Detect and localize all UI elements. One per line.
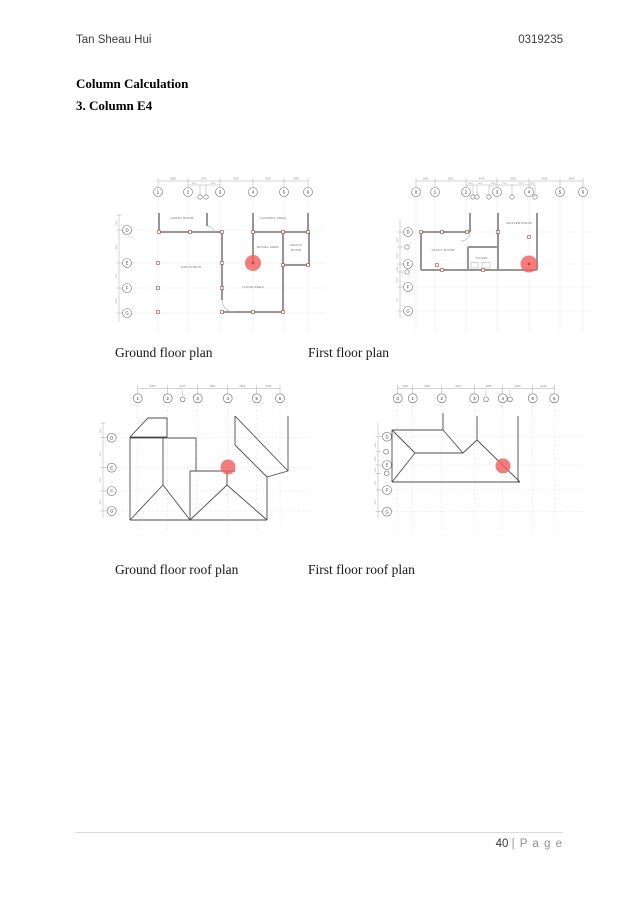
grid-bubbles: 0 1 2 3 4 5 6 D E F G (383, 394, 559, 516)
section-title: Column Calculation (76, 76, 188, 92)
header-student-id: 0319235 (518, 34, 563, 46)
svg-text:3925: 3925 (239, 384, 245, 388)
svg-text:3925: 3925 (542, 177, 548, 181)
svg-text:3925: 3925 (448, 177, 454, 181)
dimension-lines: 3925 4475 3925 3925 3440 1625 2850 3000 … (116, 177, 308, 323)
svg-text:3925: 3925 (424, 384, 430, 388)
faint-grid (404, 198, 595, 332)
svg-text:F: F (407, 285, 410, 290)
svg-text:TOILET: TOILET (476, 256, 488, 260)
svg-text:3925: 3925 (265, 177, 271, 181)
svg-text:D: D (110, 435, 113, 440)
roof-lines (130, 416, 288, 520)
svg-text:1425: 1425 (491, 183, 497, 185)
svg-text:CAR PORCH: CAR PORCH (181, 265, 201, 269)
footer-divider (75, 832, 563, 833)
svg-text:2060: 2060 (402, 384, 408, 388)
svg-text:4475: 4475 (180, 384, 186, 388)
svg-text:3925: 3925 (515, 384, 521, 388)
column-e4-highlight (521, 256, 538, 273)
svg-text:1950: 1950 (375, 442, 377, 448)
svg-text:3075: 3075 (397, 297, 399, 303)
svg-text:3000: 3000 (100, 499, 102, 505)
svg-text:2850: 2850 (211, 183, 217, 185)
svg-text:F: F (126, 286, 129, 291)
page-header: Tan Sheau Hui 0319235 (76, 34, 563, 46)
svg-text:3440: 3440 (293, 177, 299, 181)
svg-text:D: D (406, 230, 409, 235)
svg-text:2850: 2850 (397, 253, 399, 259)
room-labels: STUDY ROOM TOILET MASTER ROOM (432, 221, 532, 260)
svg-text:ROOM: ROOM (291, 248, 302, 252)
svg-text:4475: 4475 (455, 384, 461, 388)
svg-text:2325: 2325 (530, 183, 536, 185)
svg-text:2325: 2325 (375, 480, 377, 486)
svg-text:2325: 2325 (397, 277, 399, 283)
header-author: Tan Sheau Hui (76, 34, 151, 46)
document-page: Tan Sheau Hui 0319235 Column Calculation… (0, 0, 638, 902)
svg-text:3075: 3075 (116, 273, 118, 279)
svg-text:DINING AREA: DINING AREA (257, 245, 280, 249)
svg-text:3075: 3075 (375, 499, 377, 505)
subsection-title: 3. Column E4 (76, 98, 152, 114)
svg-text:4475: 4475 (201, 177, 207, 181)
svg-text:F: F (110, 489, 113, 494)
svg-text:1625: 1625 (478, 183, 484, 185)
svg-text:E: E (126, 261, 129, 266)
svg-text:1150: 1150 (397, 266, 399, 271)
svg-text:MASTER ROOM: MASTER ROOM (506, 221, 532, 225)
svg-text:3440: 3440 (541, 384, 547, 388)
column-e4-highlight (496, 459, 511, 474)
svg-text:3925: 3925 (510, 177, 516, 181)
svg-text:LAUNDRY AREA: LAUNDRY AREA (260, 216, 287, 220)
svg-text:3440: 3440 (569, 177, 575, 181)
svg-text:3925: 3925 (210, 384, 216, 388)
svg-text:E: E (110, 465, 113, 470)
svg-text:3925: 3925 (233, 177, 239, 181)
svg-text:D: D (125, 228, 128, 233)
svg-text:LIVING AREA: LIVING AREA (242, 285, 264, 289)
first-floor-plan-caption: First floor plan (308, 345, 389, 361)
column-markers (157, 231, 310, 314)
svg-text:3000: 3000 (100, 428, 102, 434)
svg-text:2850: 2850 (468, 183, 474, 185)
svg-text:3925: 3925 (170, 177, 176, 181)
svg-text:1625: 1625 (192, 183, 198, 185)
svg-text:MAID'S: MAID'S (290, 243, 302, 247)
first-floor-plan-figure: 2060 3925 4475 3925 3925 3440 2850 1625 … (380, 170, 600, 342)
svg-text:3225: 3225 (519, 183, 525, 185)
footer-page-suffix: | P a g e (512, 838, 563, 850)
svg-text:E: E (407, 262, 410, 267)
svg-text:E: E (386, 463, 389, 468)
svg-text:1700: 1700 (502, 183, 508, 185)
svg-text:3925: 3925 (150, 384, 156, 388)
walls (159, 213, 309, 312)
faint-grid (392, 405, 585, 532)
svg-text:D: D (385, 434, 388, 439)
footer-page-number: 40 (496, 838, 512, 850)
ground-floor-roof-plan-figure: 3925 4475 3925 3925 3440 3000 4000 3075 … (95, 378, 320, 540)
svg-text:F: F (386, 488, 389, 493)
svg-text:4475: 4475 (479, 177, 485, 181)
svg-text:3440: 3440 (266, 384, 272, 388)
svg-text:2850: 2850 (375, 456, 377, 462)
ground-floor-plan-caption: Ground floor plan (115, 345, 212, 361)
ground-floor-roof-plan-caption: Ground floor roof plan (115, 562, 238, 578)
svg-text:STUDY ROOM: STUDY ROOM (432, 248, 455, 252)
svg-text:1950: 1950 (397, 237, 399, 243)
svg-text:1150: 1150 (375, 467, 377, 472)
column-e4-highlight (221, 460, 236, 475)
svg-text:3000: 3000 (116, 220, 118, 226)
ground-floor-plan-figure: 3925 4475 3925 3925 3440 1625 2850 3000 … (110, 170, 330, 342)
column-e4-highlight (245, 255, 261, 271)
svg-text:3075: 3075 (100, 477, 102, 483)
svg-text:2060: 2060 (423, 177, 429, 181)
first-floor-roof-plan-figure: 2060 3925 4475 3925 3925 3440 1950 2850 … (365, 378, 590, 540)
svg-text:3000: 3000 (116, 298, 118, 304)
svg-text:4000: 4000 (116, 244, 118, 250)
svg-text:4000: 4000 (100, 451, 102, 457)
page-footer: 40 | P a g e (496, 838, 563, 850)
svg-text:3925: 3925 (486, 384, 492, 388)
svg-text:GUEST ROOM: GUEST ROOM (170, 216, 193, 220)
first-floor-roof-plan-caption: First floor roof plan (308, 562, 415, 578)
